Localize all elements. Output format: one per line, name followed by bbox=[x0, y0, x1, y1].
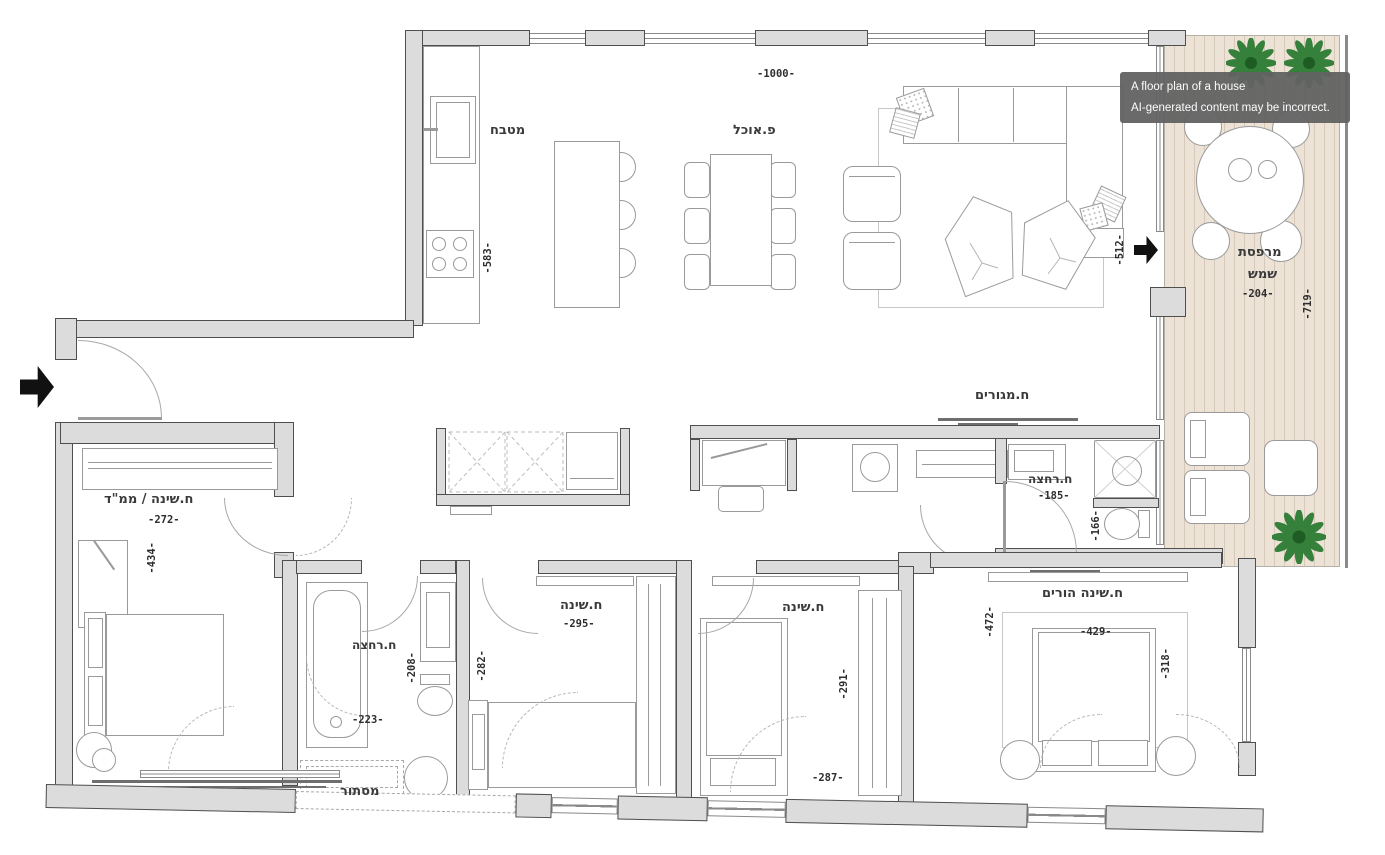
armchair-back bbox=[849, 176, 895, 177]
room-label-bath-main: ח.רחצה bbox=[1028, 472, 1072, 486]
door-arc bbox=[224, 498, 288, 556]
shelf bbox=[536, 576, 634, 586]
window bbox=[1242, 648, 1251, 742]
lounger-pillow bbox=[1190, 478, 1206, 516]
room-label-bedroom-b: ח.שינה bbox=[782, 600, 824, 615]
lounger-pillow bbox=[1190, 420, 1206, 458]
burner bbox=[453, 237, 467, 251]
room-label-bedroom-a: ח.שינה bbox=[560, 598, 602, 613]
armchair bbox=[843, 232, 901, 290]
dining-chair bbox=[684, 162, 710, 198]
closet-handle bbox=[450, 506, 492, 515]
tv-line bbox=[958, 423, 1018, 425]
plate bbox=[1228, 158, 1252, 182]
wardrobe-line bbox=[872, 598, 873, 788]
dining-chair bbox=[770, 208, 796, 244]
wall bbox=[690, 439, 700, 491]
armchair-back bbox=[849, 242, 895, 243]
room-label-bath-small: ח.רחצה bbox=[352, 638, 396, 652]
floor-plan: מטבח פ.אוכל ח.מגורים מרפסת שמש ח.שינה / … bbox=[0, 0, 1385, 855]
wall bbox=[405, 30, 423, 326]
room-label-dining: פ.אוכל bbox=[733, 123, 776, 138]
dim-parents-bed-width: -429- bbox=[1080, 626, 1112, 638]
dining-chair bbox=[770, 254, 796, 290]
dining-chair bbox=[684, 208, 710, 244]
wall bbox=[405, 30, 530, 46]
tv-line bbox=[938, 418, 1078, 421]
bed-pillow bbox=[1098, 740, 1148, 766]
wall bbox=[62, 320, 414, 338]
balcony-side-table bbox=[1264, 440, 1318, 496]
wardrobe bbox=[82, 448, 278, 490]
window bbox=[1156, 316, 1164, 420]
dim-bath-small-height: -208- bbox=[406, 652, 418, 684]
dim-bath-main-width: -185- bbox=[1038, 490, 1070, 502]
burner bbox=[432, 257, 446, 271]
ledge-line bbox=[92, 780, 342, 783]
wardrobe-line bbox=[88, 468, 272, 469]
toilet-bowl bbox=[1104, 508, 1140, 540]
wall bbox=[930, 552, 1222, 568]
dining-chair bbox=[684, 254, 710, 290]
nightstand bbox=[1000, 740, 1040, 780]
toilet-bowl bbox=[417, 686, 453, 716]
wall bbox=[756, 560, 900, 574]
sofa-seam bbox=[1013, 88, 1014, 142]
burner bbox=[453, 257, 467, 271]
dim-mamad-width: -272- bbox=[148, 514, 180, 526]
window bbox=[1156, 440, 1164, 545]
room-label-balcony-1: מרפסת bbox=[1238, 245, 1282, 260]
door-leaf bbox=[1003, 481, 1006, 553]
wall bbox=[55, 422, 73, 794]
plant-icon bbox=[1272, 510, 1326, 564]
window bbox=[140, 770, 340, 778]
kitchen-counter bbox=[423, 46, 480, 324]
dim-bedroom-b-height: -291- bbox=[838, 668, 850, 700]
entry-door-leaf bbox=[78, 417, 162, 420]
wall bbox=[690, 425, 1160, 439]
room-label-kitchen: מטבח bbox=[490, 123, 525, 138]
wall bbox=[60, 422, 294, 444]
shower-drain bbox=[1112, 456, 1142, 486]
wall bbox=[995, 438, 1007, 484]
door-arc bbox=[362, 576, 418, 632]
bed-pillow bbox=[88, 676, 103, 726]
dim-bath-small-width: -223- bbox=[352, 714, 384, 726]
wall bbox=[676, 560, 692, 802]
toilet-tank bbox=[420, 674, 450, 685]
dim-parents-height: -472- bbox=[984, 606, 996, 638]
balcony-arrow-icon bbox=[1134, 236, 1158, 264]
wall bbox=[1238, 558, 1256, 648]
wardrobe bbox=[858, 590, 902, 796]
tooltip-line-2: AI-generated content may be incorrect. bbox=[1131, 102, 1339, 114]
entry-arrow-icon bbox=[20, 366, 54, 408]
dim-balcony-height: -719- bbox=[1302, 288, 1314, 320]
alt-text-tooltip: A floor plan of a house AI-generated con… bbox=[1120, 72, 1350, 123]
desk-chair bbox=[718, 486, 764, 512]
dim-living-height: -512- bbox=[1114, 234, 1126, 266]
closet-shelf-line bbox=[570, 478, 614, 479]
cooktop bbox=[426, 230, 474, 278]
lounge-poufs bbox=[922, 188, 1102, 318]
wall bbox=[282, 560, 298, 786]
dining-table bbox=[710, 154, 772, 286]
room-label-mistor: מסתור bbox=[340, 784, 379, 799]
wall bbox=[1148, 30, 1186, 46]
dim-wc-height: -166- bbox=[1090, 510, 1102, 542]
armchair bbox=[843, 166, 901, 222]
dim-kitchen-height: -583- bbox=[482, 242, 494, 274]
vanity-basin bbox=[1014, 450, 1054, 472]
vanity-basin bbox=[426, 592, 450, 648]
nightstand bbox=[92, 748, 116, 772]
faucet bbox=[424, 128, 438, 131]
room-label-balcony-2: שמש bbox=[1248, 267, 1277, 282]
wardrobe bbox=[988, 572, 1188, 582]
wall bbox=[420, 560, 456, 574]
wall bbox=[296, 560, 362, 574]
desk bbox=[702, 440, 786, 486]
wall bbox=[55, 318, 77, 360]
wall bbox=[787, 439, 797, 491]
door-arc bbox=[482, 578, 538, 634]
closet-hanging bbox=[448, 431, 564, 493]
door-arc-dashed bbox=[296, 498, 352, 556]
wardrobe-line bbox=[88, 462, 272, 463]
wall bbox=[436, 494, 630, 506]
wall bbox=[755, 30, 868, 46]
kitchen-sink-basin bbox=[436, 102, 470, 158]
bathtub-drain bbox=[330, 716, 342, 728]
balcony-table bbox=[1196, 126, 1304, 234]
kitchen-island bbox=[554, 141, 620, 308]
wall bbox=[585, 30, 645, 46]
plate bbox=[1258, 160, 1277, 179]
tooltip-line-1: A floor plan of a house bbox=[1131, 81, 1339, 93]
wall bbox=[1093, 498, 1159, 508]
room-label-living: ח.מגורים bbox=[975, 388, 1029, 403]
burner bbox=[432, 237, 446, 251]
dining-chair bbox=[770, 162, 796, 198]
wardrobe-line bbox=[660, 584, 661, 786]
dim-bedroom-a-width: -295- bbox=[563, 618, 595, 630]
dim-parents-bed-height: -318- bbox=[1160, 648, 1172, 680]
closet-shelf bbox=[566, 432, 618, 490]
hall-counter-line bbox=[922, 464, 1002, 465]
wall bbox=[1150, 287, 1186, 317]
room-label-mamad: ח.שינה / ממ"ד bbox=[104, 492, 193, 507]
washing-machine-drum bbox=[860, 452, 890, 482]
wardrobe-line bbox=[648, 584, 649, 786]
dim-bedroom-b-width: -287- bbox=[812, 772, 844, 784]
sofa-seam bbox=[958, 88, 959, 142]
room-label-parents: ח.שינה הורים bbox=[1042, 586, 1123, 601]
bed-pillow bbox=[472, 714, 485, 770]
dim-mamad-height: -434- bbox=[146, 542, 158, 574]
bed-pillow bbox=[88, 618, 103, 668]
door-arc-dashed bbox=[1176, 714, 1240, 768]
wall bbox=[985, 30, 1035, 46]
wardrobe bbox=[636, 576, 676, 794]
dim-bedroom-a-height: -282- bbox=[476, 650, 488, 682]
wall bbox=[538, 560, 678, 574]
wardrobe-line bbox=[886, 598, 887, 788]
entry-door-arc bbox=[78, 340, 162, 418]
dim-top-width: -1000- bbox=[757, 68, 795, 80]
wall bbox=[1238, 742, 1256, 776]
dim-balcony-width: -204- bbox=[1242, 288, 1274, 300]
